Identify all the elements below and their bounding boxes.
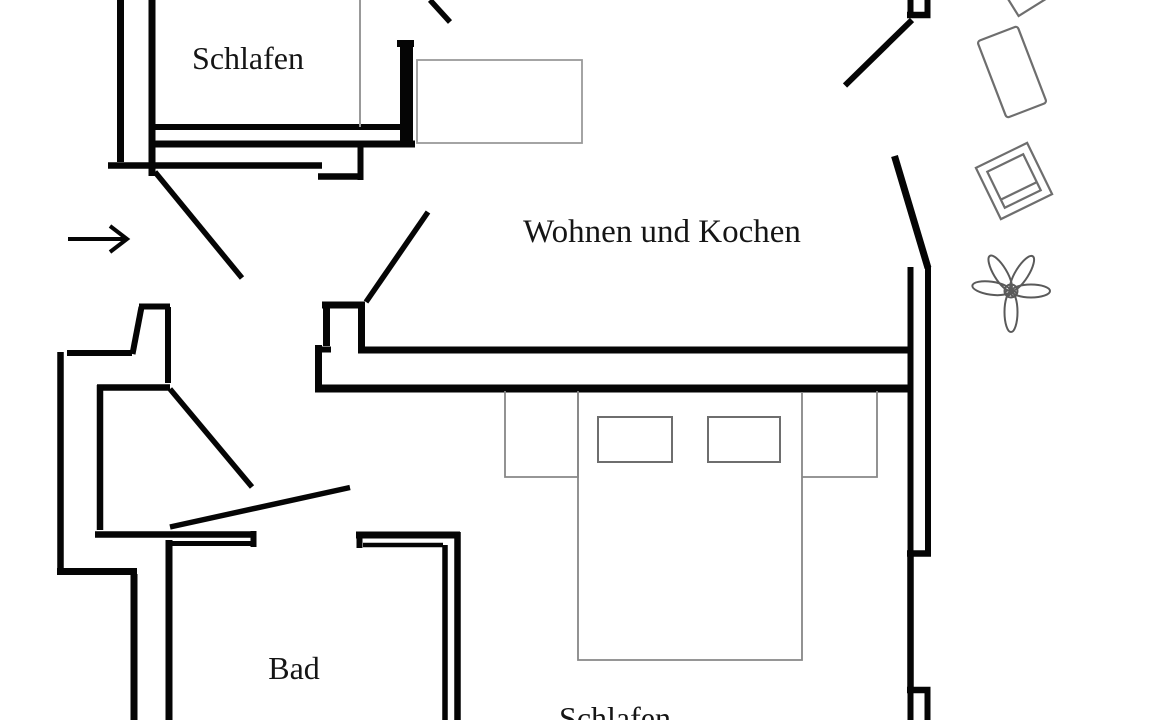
floorplan: Schlafen Wohnen und Kochen Bad Schlafen [0, 0, 1152, 720]
pillow-right-icon [708, 417, 780, 462]
plant-icon [971, 253, 1050, 332]
wall-right-slant [895, 156, 929, 268]
balcony-table-icon [977, 26, 1047, 118]
room-label-wohnen-und-kochen: Wohnen und Kochen [523, 214, 801, 250]
balcony-object-clipped-icon [994, 0, 1046, 16]
room-label-bad: Bad [268, 650, 320, 686]
room-label-schlafen-top: Schlafen [192, 40, 304, 76]
single-bed-icon [417, 60, 582, 143]
wall-niche-slant [133, 307, 142, 354]
double-bed-icon [578, 392, 802, 660]
door-swing-top [430, 0, 450, 22]
room-label-schlafen-bottom: Schlafen [559, 700, 671, 720]
nightstand-right-icon [802, 391, 877, 477]
floorplan-drawing: Schlafen Wohnen und Kochen Bad Schlafen [0, 0, 1152, 720]
door-swing-living [366, 212, 428, 302]
door-swing-corridor [170, 389, 252, 487]
nightstand-left-icon [505, 391, 578, 477]
door-swing-balcony [845, 20, 912, 86]
balcony-chair-icon [976, 143, 1052, 219]
door-swing-schlafen-bottom [170, 488, 350, 528]
entrance-arrow-icon [68, 226, 127, 252]
pillow-left-icon [598, 417, 672, 462]
door-swing-schlafen-top [155, 172, 242, 278]
